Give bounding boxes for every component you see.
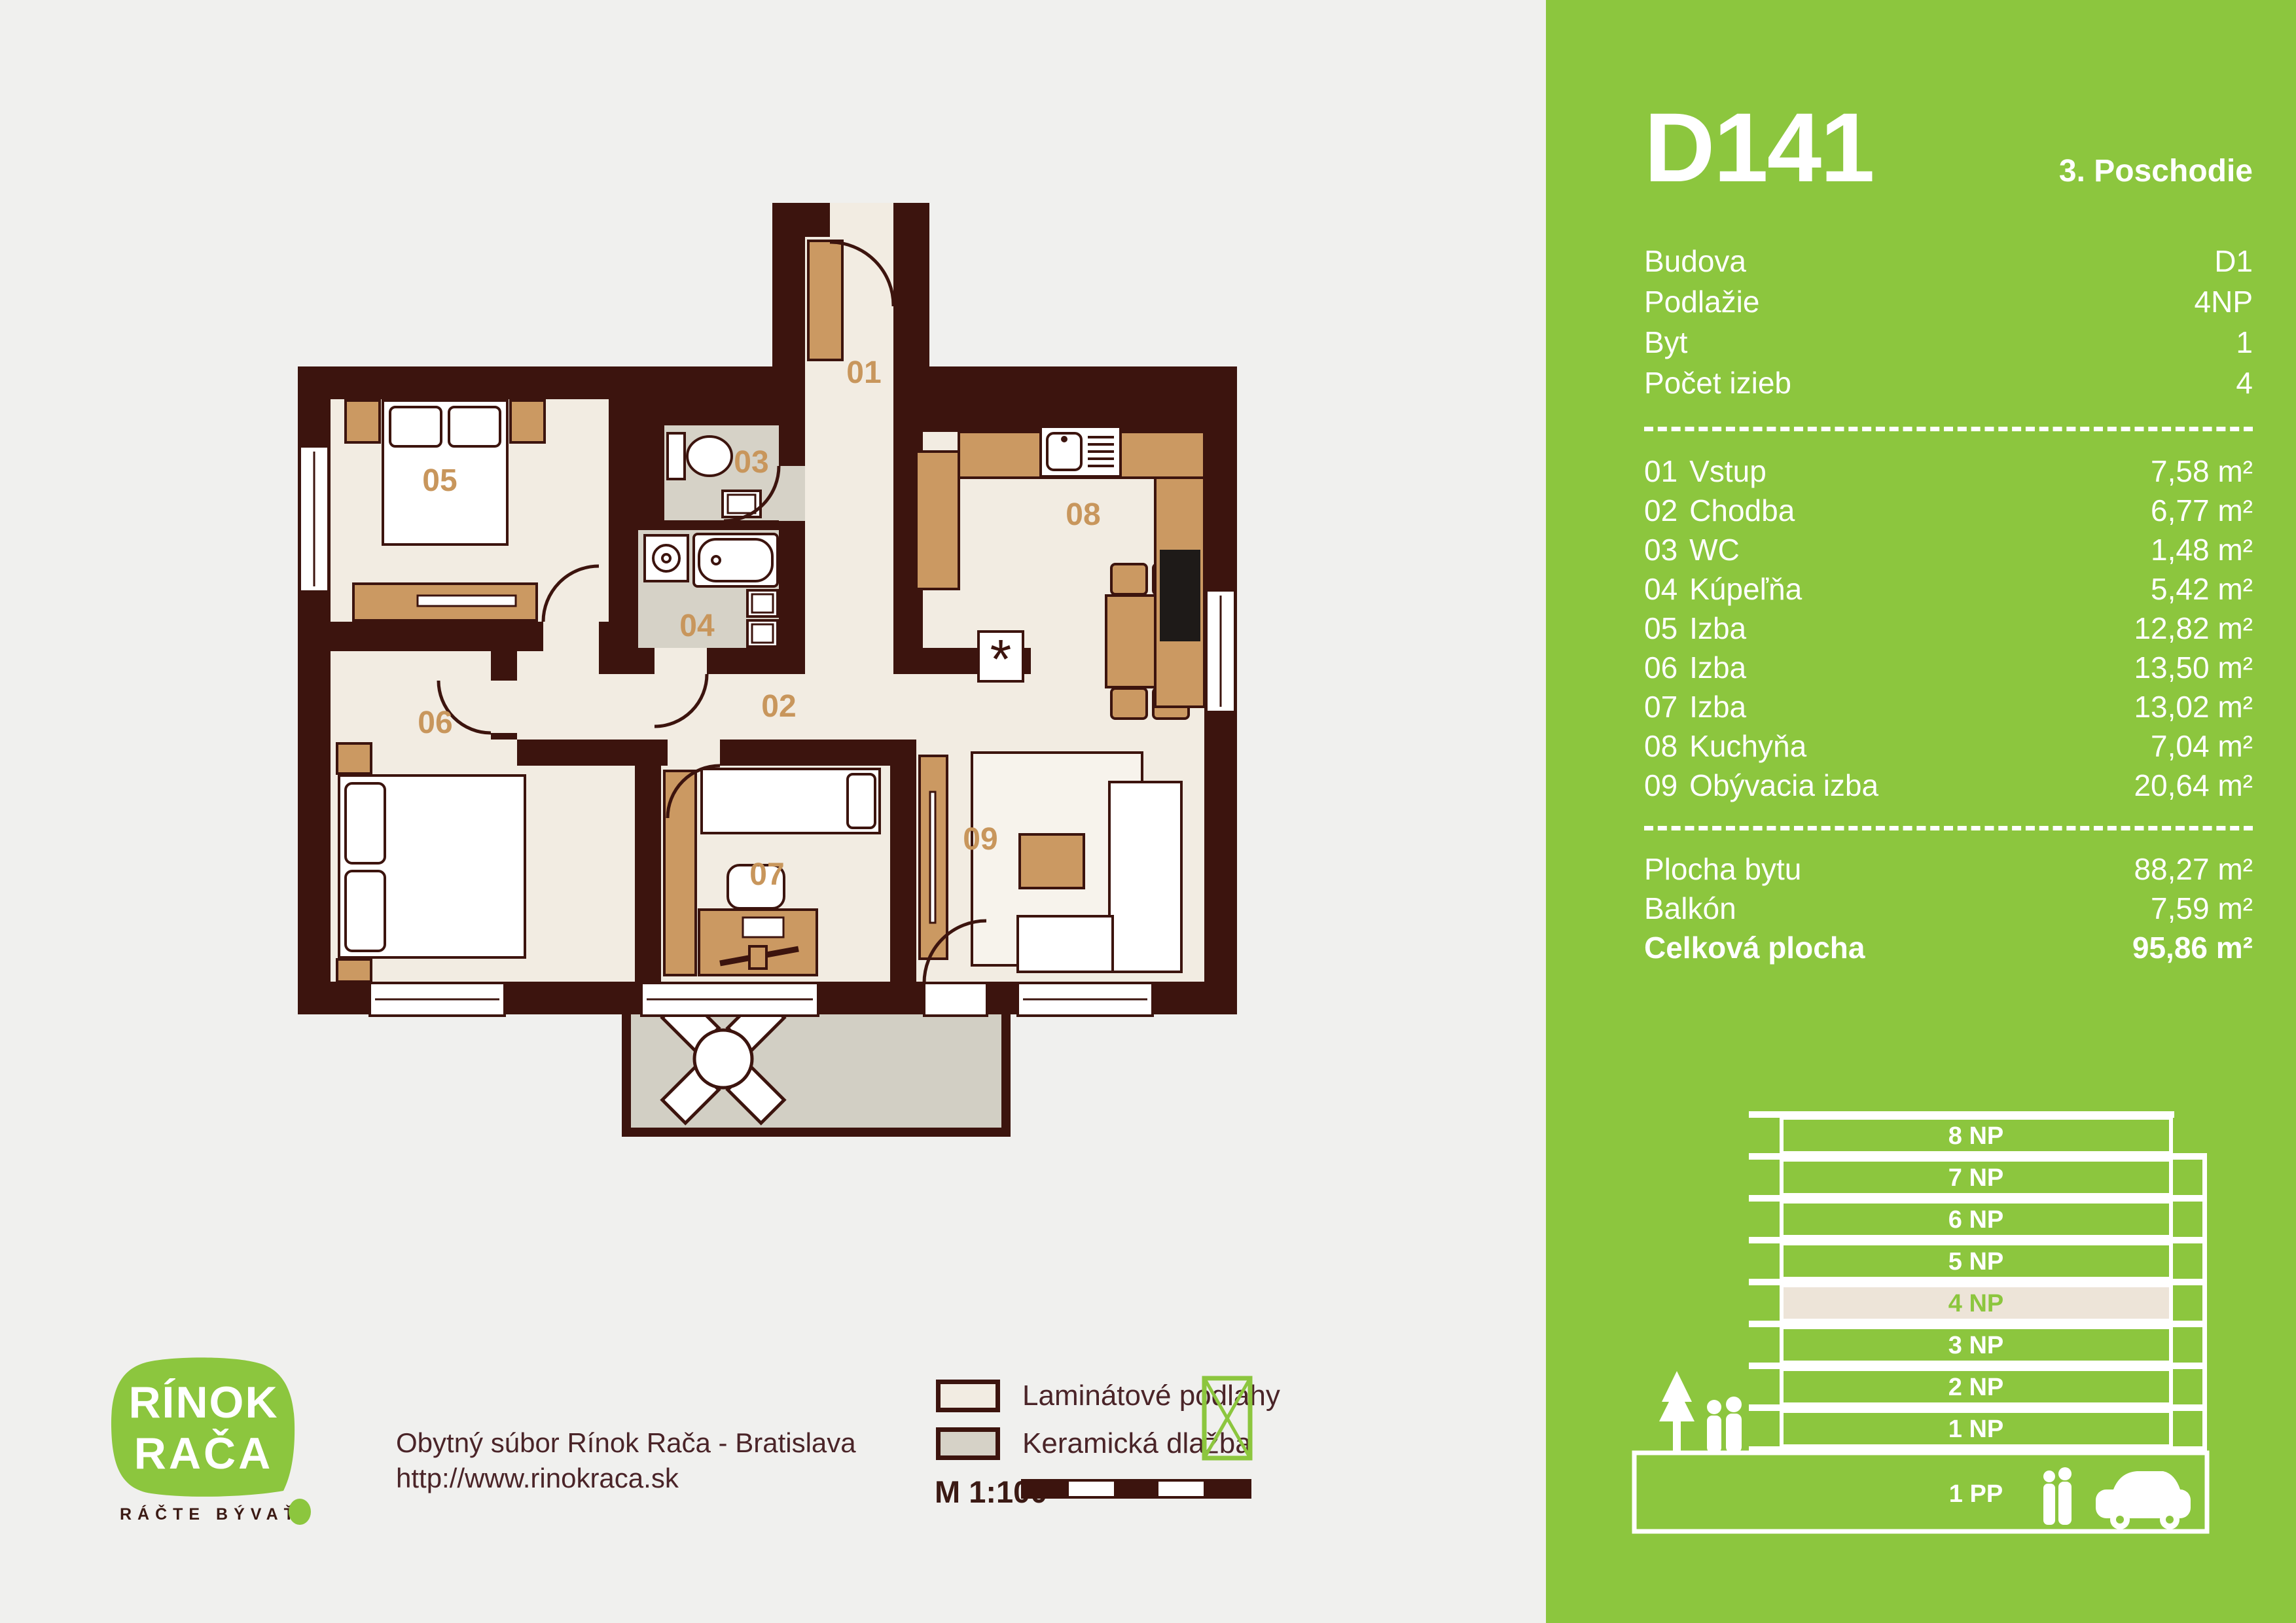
apartment-info: Budova D1 Podlažie 4NP Byt 1 Počet izieb… [1644, 241, 2253, 403]
floor-label: 3 NP [1948, 1332, 2003, 1359]
info-label: Budova [1644, 241, 1746, 281]
room-row: 01Vstup 7,58 m² [1644, 452, 2253, 491]
tree-icon [1659, 1371, 1695, 1453]
info-row: Podlažie 4NP [1644, 281, 2253, 322]
pillow [848, 774, 875, 828]
info-row: Budova D1 [1644, 241, 2253, 281]
website-link[interactable]: http://www.rinokraca.sk [396, 1463, 679, 1493]
scale-bar [1021, 1479, 1251, 1499]
total-value: 7,59 m² [2151, 889, 2253, 928]
logo-tagline: RÁČTE BÝVAŤ [120, 1505, 287, 1524]
room-label-09: 09 [963, 822, 997, 857]
floor-label: 1 PP [1949, 1480, 2003, 1508]
project-name: Obytný súbor Rínok Rača - Bratislava [396, 1425, 856, 1461]
flyer-page: * [0, 0, 2296, 1623]
room-row: 08Kuchyňa 7,04 m² [1644, 726, 2253, 766]
room-code: 06 [1644, 648, 1677, 687]
logo-bubble: RÍNOK RAČA [108, 1356, 298, 1500]
nightstand [337, 743, 371, 774]
info-label: Byt [1644, 322, 1687, 363]
room-code: 02 [1644, 491, 1677, 530]
sofa [1109, 782, 1181, 972]
people-icon [2043, 1467, 2072, 1525]
total-row: Balkón 7,59 m² [1644, 889, 2253, 928]
floor-subtitle: 3. Poschodie [2059, 156, 2253, 187]
total-row: Plocha bytu 88,27 m² [1644, 849, 2253, 889]
svg-text:RAČA: RAČA [134, 1428, 273, 1478]
room-area: 5,42 m² [2151, 569, 2253, 609]
room-name: Kuchyňa [1689, 726, 1806, 766]
floor-label: 6 NP [1948, 1206, 2003, 1234]
sofa [1018, 916, 1113, 972]
people-icon [1707, 1397, 1742, 1453]
room-code: 07 [1644, 687, 1677, 726]
info-label: Podlažie [1644, 281, 1759, 322]
cooktop [1160, 550, 1200, 641]
totals: Plocha bytu 88,27 m² Balkón 7,59 m² Celk… [1644, 849, 2253, 967]
separator [1644, 427, 2253, 431]
nightstand [511, 401, 545, 442]
room-label-02: 02 [761, 689, 796, 724]
north-arrow-icon [1202, 1376, 1253, 1461]
room-label-06: 06 [418, 705, 452, 740]
info-panel: D141 3. Poschodie Budova D1 Podlažie 4NP… [1546, 0, 2296, 1623]
toilet-tank [668, 433, 685, 479]
room-row: 04Kúpeľňa 5,42 m² [1644, 569, 2253, 609]
nightstand [337, 959, 371, 982]
info-value: 1 [2236, 322, 2253, 363]
pillow [346, 871, 385, 951]
toilet-bowl [687, 437, 732, 476]
bedroom-06-furniture [337, 743, 525, 982]
total-label: Plocha bytu [1644, 849, 1801, 889]
balcony-table [694, 1030, 752, 1088]
room-row: 05Izba 12,82 m² [1644, 609, 2253, 648]
total-label: Balkón [1644, 889, 1736, 928]
entry-wardrobe [808, 241, 842, 360]
room-name: WC [1689, 530, 1740, 569]
info-value: D1 [2214, 241, 2253, 281]
room-label-08: 08 [1066, 497, 1100, 532]
room-label-01: 01 [846, 355, 881, 390]
boiler-symbol: * [990, 628, 1012, 690]
room-code: 08 [1644, 726, 1677, 766]
pillow [390, 407, 441, 446]
room-area: 7,58 m² [2151, 452, 2253, 491]
floor-label: 5 NP [1948, 1248, 2003, 1275]
footer-text: Obytný súbor Rínok Rača - Bratislava htt… [396, 1425, 856, 1496]
floor-label: 1 NP [1948, 1416, 2003, 1443]
floor-label-highlighted: 4 NP [1948, 1290, 2003, 1317]
room-name: Izba [1689, 687, 1746, 726]
floor-label: 8 NP [1948, 1122, 2003, 1150]
room-list: 01Vstup 7,58 m² 02Chodba 6,77 m² 03WC 1,… [1644, 452, 2253, 805]
svg-text:RÍNOK: RÍNOK [128, 1378, 278, 1427]
room-label-04: 04 [679, 609, 715, 643]
laminate-swatch [936, 1380, 1000, 1412]
room-area: 7,04 m² [2151, 726, 2253, 766]
room-name: Kúpeľňa [1689, 569, 1802, 609]
total-row-grand: Celková plocha 95,86 m² [1644, 928, 2253, 967]
coffee-table [1020, 834, 1084, 888]
info-value: 4NP [2195, 281, 2253, 322]
room-area: 12,82 m² [2134, 609, 2253, 648]
total-value: 88,27 m² [2134, 849, 2253, 889]
info-value: 4 [2236, 363, 2253, 403]
room-name: Vstup [1689, 452, 1767, 491]
dining-chair [1111, 564, 1147, 594]
info-row: Počet izieb 4 [1644, 363, 2253, 403]
dining-chair [1111, 688, 1147, 719]
separator [1644, 826, 2253, 830]
room-label-03: 03 [734, 445, 768, 480]
room-code: 05 [1644, 609, 1677, 648]
room-row: 02Chodba 6,77 m² [1644, 491, 2253, 530]
room-row: 07Izba 13,02 m² [1644, 687, 2253, 726]
nightstand [346, 401, 380, 442]
room-code: 04 [1644, 569, 1677, 609]
pillow [449, 407, 500, 446]
room-code: 03 [1644, 530, 1677, 569]
ceramic-swatch [936, 1427, 1000, 1460]
counter [916, 452, 959, 589]
room-label-07: 07 [749, 857, 784, 892]
room-label-05: 05 [422, 463, 457, 498]
logo-dot-icon [289, 1499, 311, 1525]
room-row: 03WC 1,48 m² [1644, 530, 2253, 569]
info-row: Byt 1 [1644, 322, 2253, 363]
floor-plan: * [262, 164, 1309, 1211]
room-code: 09 [1644, 766, 1677, 805]
room-area: 6,77 m² [2151, 491, 2253, 530]
room-code: 01 [1644, 452, 1677, 491]
room-area: 13,02 m² [2134, 687, 2253, 726]
room-area: 20,64 m² [2134, 766, 2253, 805]
floor-label: 2 NP [1948, 1374, 2003, 1401]
room-row: 09Obývacia izba 20,64 m² [1644, 766, 2253, 805]
logo: RÍNOK RAČA RÁČTE BÝVAŤ [108, 1356, 324, 1552]
building-section-diagram: 8 NP 7 NP 6 NP 5 NP 4 NP 3 NP 2 NP 1 NP … [1615, 1099, 2230, 1551]
room-area: 1,48 m² [2151, 530, 2253, 569]
total-value: 95,86 m² [2132, 928, 2253, 967]
room-name: Chodba [1689, 491, 1795, 530]
room-row: 06Izba 13,50 m² [1644, 648, 2253, 687]
apartment-title: D141 [1644, 98, 1874, 196]
floor-label: 7 NP [1948, 1164, 2003, 1192]
room-name: Obývacia izba [1689, 766, 1878, 805]
room-area: 13,50 m² [2134, 648, 2253, 687]
pillow [346, 783, 385, 863]
balcony-door [924, 983, 987, 1016]
room-name: Izba [1689, 648, 1746, 687]
car-icon [2096, 1471, 2191, 1529]
room-name: Izba [1689, 609, 1746, 648]
total-label: Celková plocha [1644, 928, 1865, 967]
info-label: Počet izieb [1644, 363, 1791, 403]
